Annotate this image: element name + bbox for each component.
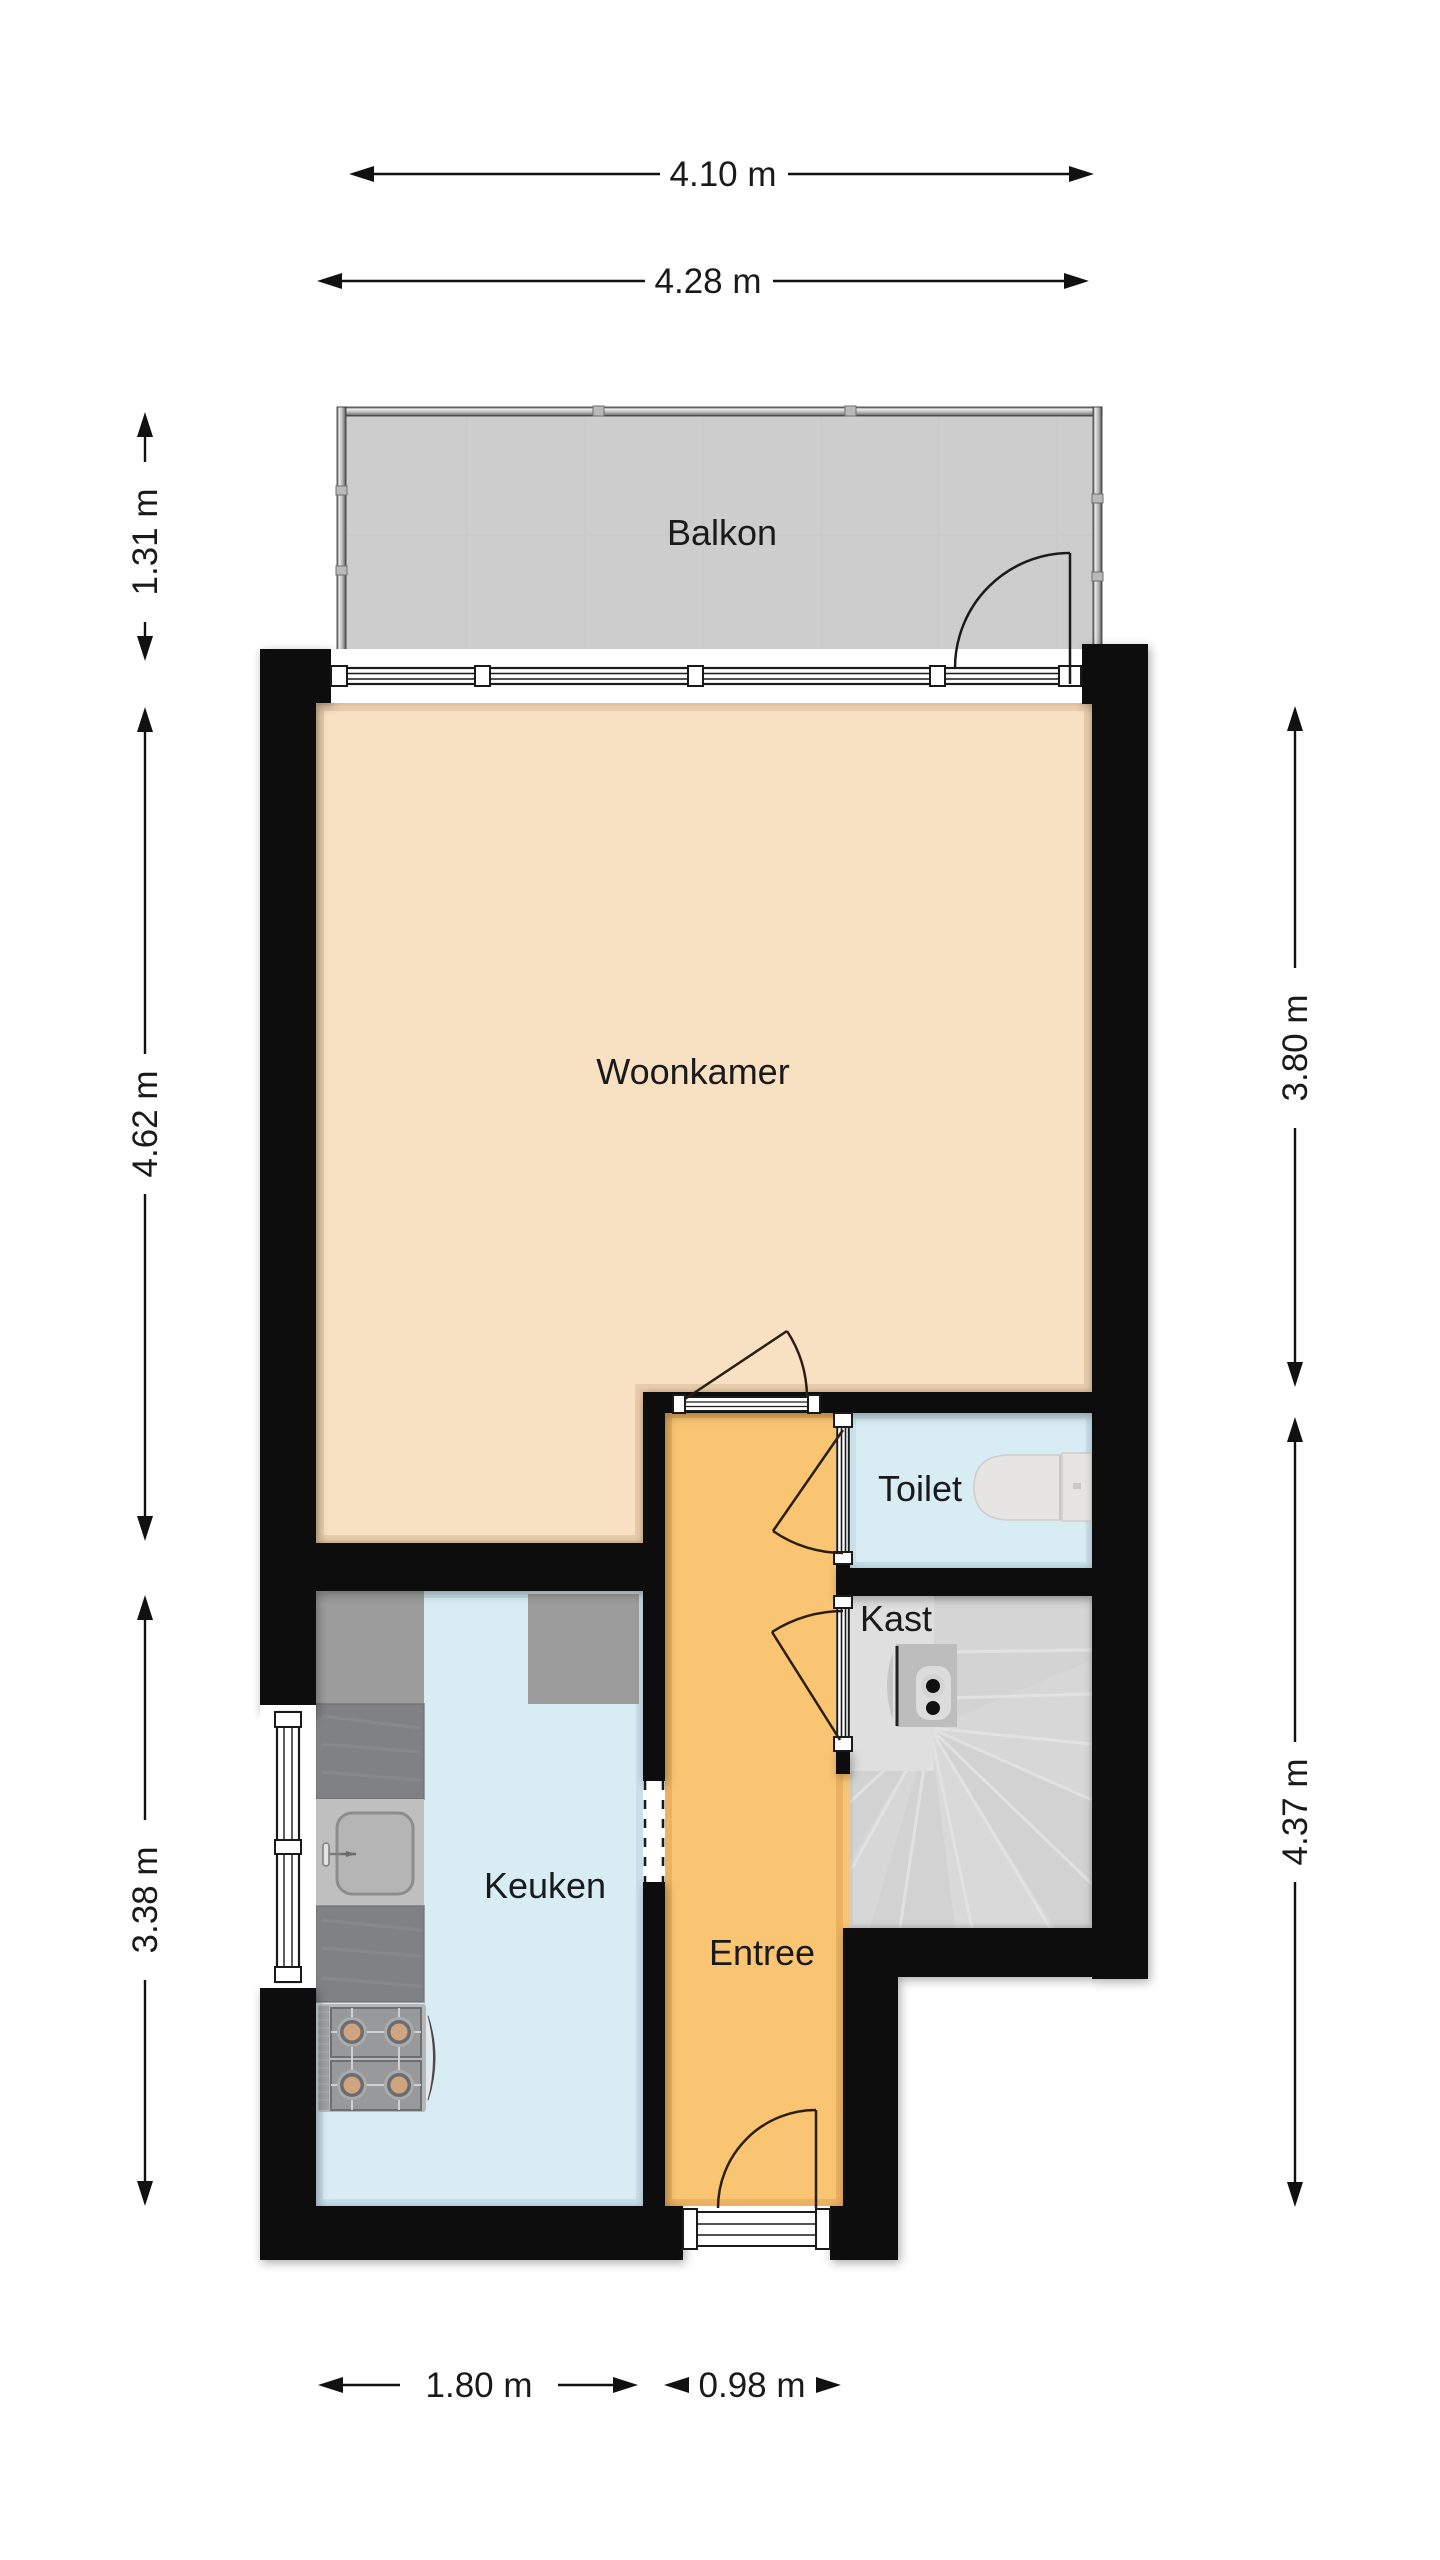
svg-text:4.10 m: 4.10 m	[670, 155, 777, 194]
svg-text:3.38 m: 3.38 m	[126, 1847, 165, 1954]
svg-text:Kast: Kast	[860, 1598, 932, 1639]
svg-text:0.98 m: 0.98 m	[699, 2366, 806, 2405]
svg-text:1.80 m: 1.80 m	[426, 2366, 533, 2405]
svg-text:3.80 m: 3.80 m	[1276, 995, 1315, 1102]
svg-text:Keuken: Keuken	[484, 1865, 606, 1906]
svg-text:Woonkamer: Woonkamer	[596, 1051, 789, 1092]
svg-text:Balkon: Balkon	[667, 512, 777, 553]
svg-text:Toilet: Toilet	[878, 1468, 962, 1509]
svg-text:4.62 m: 4.62 m	[126, 1071, 165, 1178]
svg-text:4.37 m: 4.37 m	[1276, 1759, 1315, 1866]
svg-text:Entree: Entree	[709, 1932, 815, 1973]
svg-text:1.31 m: 1.31 m	[126, 489, 165, 596]
svg-text:4.28 m: 4.28 m	[655, 262, 762, 301]
